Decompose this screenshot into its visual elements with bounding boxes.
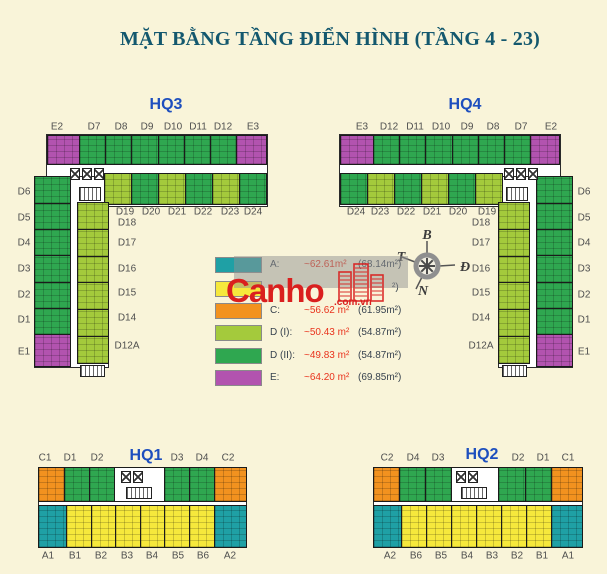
unit-cell-hq1-D3 <box>164 468 189 501</box>
unit-cell-hq3-D15 <box>78 282 108 309</box>
legend-area-value: ~49.83 m² <box>304 348 358 364</box>
unit-cell-hq4-D15 <box>499 282 529 309</box>
unit-label-hq3-D15: D15 <box>118 288 136 299</box>
strip-hq3-innerCol <box>77 202 109 364</box>
legend-row-D (II): D (II):~49.83 m²(54.87m²) <box>270 348 401 364</box>
unit-label-hq4-E2: E2 <box>545 122 557 133</box>
unit-cell-hq4-D12A <box>499 336 529 363</box>
elevator-bank <box>70 168 104 180</box>
legend-area-value: ~64.20 m² <box>304 370 358 386</box>
legend-type-label: E: <box>270 370 304 386</box>
unit-label-hq1-B3: B3 <box>121 551 133 562</box>
unit-cell-hq2-B6 <box>401 506 426 547</box>
unit-label-hq2-A1: A1 <box>562 551 574 562</box>
unit-label-hq4-D2: D2 <box>578 290 591 301</box>
unit-cell-hq2-B5 <box>426 506 451 547</box>
unit-cell-hq4-D6 <box>537 177 572 203</box>
unit-cell-hq3-D19 <box>105 174 131 204</box>
strip-hq4-outer <box>536 176 573 367</box>
unit-cell-hq3-E1 <box>35 334 70 367</box>
legend-swatch-E <box>215 370 262 386</box>
unit-label-hq2-A2: A2 <box>384 551 396 562</box>
unit-label-hq4-D12A: D12A <box>468 341 493 352</box>
unit-label-hq3-D23: D23 <box>221 207 239 218</box>
unit-label-hq1-D4: D4 <box>196 453 209 464</box>
unit-cell-hq1-A2 <box>214 506 247 547</box>
unit-label-hq3-E2: E2 <box>51 122 63 133</box>
unit-label-hq3-D6: D6 <box>18 187 31 198</box>
unit-label-hq3-D24: D24 <box>244 207 262 218</box>
unit-cell-hq2-C1 <box>551 468 583 501</box>
legend-area-gross: (54.87m²) <box>358 348 401 364</box>
unit-label-hq2-B4: B4 <box>461 551 473 562</box>
unit-label-hq2-B6: B6 <box>410 551 422 562</box>
legend-type-label: D (I): <box>270 325 304 341</box>
unit-cell-hq3-D23 <box>212 174 239 204</box>
unit-cell-hq3-D22 <box>185 174 212 204</box>
unit-label-hq1-B5: B5 <box>172 551 184 562</box>
unit-cell-hq2-B1 <box>526 506 551 547</box>
unit-label-hq1-B2: B2 <box>95 551 107 562</box>
unit-label-hq4-D11: D11 <box>406 122 424 133</box>
stairs-icon <box>80 365 105 377</box>
unit-cell-hq4-D20 <box>448 174 475 204</box>
unit-label-hq4-D8: D8 <box>487 122 500 133</box>
unit-label-hq4-D20: D20 <box>449 207 467 218</box>
unit-label-hq2-D2: D2 <box>512 453 525 464</box>
legend-row-E: E:~64.20 m²(69.85m²) <box>270 370 401 386</box>
unit-cell-hq2-D4 <box>399 468 425 501</box>
unit-cell-hq3-D16 <box>78 256 108 283</box>
unit-cell-hq4-E3 <box>341 136 373 164</box>
unit-label-hq3-D5: D5 <box>18 213 31 224</box>
unit-label-hq3-D14: D14 <box>118 313 136 324</box>
unit-label-hq3-D20: D20 <box>142 207 160 218</box>
unit-label-hq4-D19: D19 <box>478 207 496 218</box>
unit-label-hq4-E1: E1 <box>578 347 590 358</box>
unit-label-hq3-D21: D21 <box>168 207 186 218</box>
unit-cell-hq3-D11 <box>184 136 210 164</box>
unit-cell-hq3-D2 <box>35 282 70 308</box>
unit-label-hq1-B4: B4 <box>146 551 158 562</box>
unit-label-hq1-B1: B1 <box>69 551 81 562</box>
unit-cell-hq1-D4 <box>189 468 214 501</box>
unit-cell-hq4-D14 <box>499 309 529 336</box>
unit-cell-hq3-D10 <box>158 136 184 164</box>
unit-cell-hq3-D3 <box>35 255 70 282</box>
legend-area-value: ~50.43 m² <box>304 325 358 341</box>
unit-cell-hq4-E2 <box>530 136 560 164</box>
unit-label-hq4-D6: D6 <box>578 187 591 198</box>
unit-cell-hq1-B1 <box>66 506 91 547</box>
stairs-icon <box>461 487 487 499</box>
unit-label-hq3-D22: D22 <box>194 207 212 218</box>
unit-cell-hq4-D17 <box>499 229 529 256</box>
unit-label-hq3-D1: D1 <box>18 315 31 326</box>
elevator-bank <box>456 471 478 483</box>
unit-label-hq4-D14: D14 <box>472 313 490 324</box>
floor-plan-canvas: MẶT BẰNG TẦNG ĐIỂN HÌNH (TẦNG 4 - 23) E2… <box>0 0 607 574</box>
unit-label-hq1-A1: A1 <box>42 551 54 562</box>
strip-hq3-inner <box>104 173 267 205</box>
unit-cell-hq3-E2 <box>48 136 79 164</box>
legend-row-D (I): D (I):~50.43 m²(54.87m²) <box>270 325 401 341</box>
unit-label-hq1-D1: D1 <box>64 453 77 464</box>
unit-label-hq4-D22: D22 <box>397 207 415 218</box>
unit-label-hq3-D17: D17 <box>118 238 136 249</box>
strip-hq3-outer <box>34 176 71 367</box>
unit-cell-hq4-D16 <box>499 256 529 283</box>
unit-label-hq3-D3: D3 <box>18 264 31 275</box>
unit-label-hq4-D9: D9 <box>461 122 474 133</box>
watermark-brand: Canho <box>226 274 324 307</box>
strip-hq4-innerCol <box>498 202 530 364</box>
unit-cell-hq4-D21 <box>421 174 448 204</box>
unit-cell-hq4-D19 <box>475 174 502 204</box>
unit-label-hq4-D4: D4 <box>578 238 591 249</box>
unit-label-hq4-D10: D10 <box>432 122 450 133</box>
unit-cell-hq1-D1 <box>64 468 89 501</box>
unit-label-hq3-D19: D19 <box>116 207 134 218</box>
unit-cell-hq4-D9 <box>452 136 478 164</box>
block-label-hq3: HQ3 <box>150 96 183 114</box>
unit-cell-hq3-D20 <box>131 174 158 204</box>
stairs-icon <box>506 187 528 201</box>
unit-cell-hq3-D1 <box>35 308 70 334</box>
elevator-icon <box>468 471 478 483</box>
unit-cell-hq4-D24 <box>341 174 367 204</box>
unit-label-hq3-E1: E1 <box>18 347 30 358</box>
unit-cell-hq1-D2 <box>89 468 114 501</box>
unit-cell-hq2-D1 <box>525 468 551 501</box>
unit-cell-hq1-A1 <box>39 506 66 547</box>
strip-hq2-bottom <box>373 505 583 548</box>
unit-label-hq1-C1: C1 <box>39 453 52 464</box>
unit-cell-hq3-D12A <box>78 336 108 363</box>
unit-label-hq2-B5: B5 <box>435 551 447 562</box>
strip-hq4-inner <box>340 173 503 205</box>
unit-cell-hq3-D12 <box>210 136 236 164</box>
block-label-hq1: HQ1 <box>130 447 163 465</box>
compass-north-label: B <box>422 228 431 244</box>
unit-label-hq4-D1: D1 <box>578 315 591 326</box>
unit-cell-hq3-D8 <box>105 136 131 164</box>
unit-cell-hq3-D9 <box>131 136 158 164</box>
unit-label-hq3-E3: E3 <box>247 122 259 133</box>
unit-cell-hq3-D14 <box>78 309 108 336</box>
unit-cell-hq2-D2 <box>498 468 525 501</box>
unit-label-hq4-D18: D18 <box>472 218 490 229</box>
unit-cell-hq3-D24 <box>239 174 266 204</box>
elevator-icon <box>456 471 466 483</box>
unit-label-hq1-B6: B6 <box>197 551 209 562</box>
unit-cell-hq4-D22 <box>394 174 421 204</box>
strip-hq4-top <box>340 135 560 165</box>
unit-cell-hq1-B2 <box>91 506 116 547</box>
unit-label-hq2-D3: D3 <box>432 453 445 464</box>
stairs-icon <box>79 187 101 201</box>
stairs-icon <box>126 487 152 499</box>
unit-cell-hq4-D4 <box>537 229 572 255</box>
unit-label-hq3-D4: D4 <box>18 238 31 249</box>
legend-area-gross: (69.85m²) <box>358 370 401 386</box>
unit-label-hq1-D3: D3 <box>171 453 184 464</box>
unit-cell-hq4-D3 <box>537 255 572 282</box>
unit-label-hq4-D7: D7 <box>515 122 528 133</box>
unit-label-hq4-D12: D12 <box>380 122 398 133</box>
compass-south-label: N <box>418 284 428 300</box>
unit-label-hq4-D24: D24 <box>347 207 365 218</box>
unit-cell-hq4-D7 <box>504 136 530 164</box>
unit-label-hq2-C1: C1 <box>562 453 575 464</box>
unit-label-hq3-D11: D11 <box>189 122 207 133</box>
unit-cell-hq2-A1 <box>551 506 583 547</box>
unit-label-hq4-D5: D5 <box>578 213 591 224</box>
unit-cell-hq3-D6 <box>35 177 70 203</box>
elevator-icon <box>528 168 538 180</box>
unit-cell-hq2-C2 <box>374 468 399 501</box>
unit-cell-hq1-C2 <box>214 468 247 501</box>
unit-cell-hq4-D8 <box>478 136 504 164</box>
unit-label-hq2-D1: D1 <box>537 453 550 464</box>
unit-label-hq4-E3: E3 <box>356 122 368 133</box>
unit-label-hq4-D21: D21 <box>423 207 441 218</box>
elevator-icon <box>121 471 131 483</box>
unit-label-hq4-D23: D23 <box>371 207 389 218</box>
strip-hq1-bottom <box>38 505 247 548</box>
elevator-icon <box>70 168 80 180</box>
unit-cell-hq4-D2 <box>537 282 572 308</box>
unit-cell-hq1-B6 <box>189 506 214 547</box>
elevator-bank <box>504 168 538 180</box>
unit-cell-hq1-B5 <box>164 506 189 547</box>
unit-label-hq3-D7: D7 <box>88 122 101 133</box>
unit-cell-hq3-D17 <box>78 229 108 256</box>
unit-cell-hq3-D21 <box>158 174 185 204</box>
unit-label-hq1-C2: C2 <box>222 453 235 464</box>
unit-cell-hq3-D5 <box>35 203 70 229</box>
unit-cell-hq1-B4 <box>140 506 165 547</box>
elevator-icon <box>504 168 514 180</box>
block-label-hq2: HQ2 <box>466 446 499 464</box>
strip-hq3-top <box>47 135 267 165</box>
elevator-icon <box>82 168 92 180</box>
legend-swatch-D (II) <box>215 348 262 364</box>
elevator-bank <box>121 471 143 483</box>
elevator-icon <box>516 168 526 180</box>
unit-cell-hq2-D3 <box>425 468 451 501</box>
unit-label-hq2-B1: B1 <box>536 551 548 562</box>
compass-east-label: Đ <box>460 260 470 276</box>
unit-label-hq2-B2: B2 <box>511 551 523 562</box>
unit-label-hq1-D2: D2 <box>91 453 104 464</box>
unit-cell-hq4-D18 <box>499 203 529 229</box>
unit-label-hq1-A2: A2 <box>224 551 236 562</box>
elevator-icon <box>133 471 143 483</box>
unit-cell-hq4-D23 <box>367 174 394 204</box>
unit-cell-hq2-B3 <box>476 506 501 547</box>
unit-label-hq2-D4: D4 <box>407 453 420 464</box>
unit-label-hq3-D2: D2 <box>18 290 31 301</box>
unit-cell-hq4-D11 <box>399 136 425 164</box>
page-title: MẶT BẰNG TẦNG ĐIỂN HÌNH (TẦNG 4 - 23) <box>120 28 540 51</box>
unit-cell-hq3-D7 <box>79 136 105 164</box>
unit-label-hq2-B3: B3 <box>486 551 498 562</box>
unit-cell-hq4-E1 <box>537 334 572 367</box>
unit-label-hq3-D9: D9 <box>141 122 154 133</box>
watermark-building-icon <box>338 263 384 303</box>
unit-label-hq3-D8: D8 <box>115 122 128 133</box>
unit-label-hq3-D16: D16 <box>118 264 136 275</box>
stairs-icon <box>502 365 527 377</box>
unit-cell-hq2-B2 <box>501 506 526 547</box>
unit-label-hq3-D12: D12 <box>214 122 232 133</box>
unit-cell-hq1-B3 <box>115 506 140 547</box>
unit-cell-hq4-D5 <box>537 203 572 229</box>
legend-area-gross: (54.87m²) <box>358 325 401 341</box>
unit-cell-hq2-A2 <box>374 506 401 547</box>
unit-label-hq3-D18: D18 <box>118 218 136 229</box>
unit-cell-hq2-B4 <box>451 506 476 547</box>
unit-cell-hq4-D1 <box>537 308 572 334</box>
legend-type-label: D (II): <box>270 348 304 364</box>
unit-cell-hq1-C1 <box>39 468 64 501</box>
unit-cell-hq4-D10 <box>425 136 452 164</box>
unit-label-hq4-D3: D3 <box>578 264 591 275</box>
unit-cell-hq3-E3 <box>236 136 267 164</box>
unit-label-hq3-D12A: D12A <box>114 341 139 352</box>
unit-cell-hq3-D4 <box>35 229 70 255</box>
elevator-icon <box>94 168 104 180</box>
legend-swatch-D (I) <box>215 325 262 341</box>
unit-label-hq3-D10: D10 <box>164 122 182 133</box>
unit-cell-hq3-D18 <box>78 203 108 229</box>
unit-label-hq2-C2: C2 <box>381 453 394 464</box>
block-label-hq4: HQ4 <box>449 96 482 114</box>
unit-cell-hq4-D12 <box>373 136 399 164</box>
